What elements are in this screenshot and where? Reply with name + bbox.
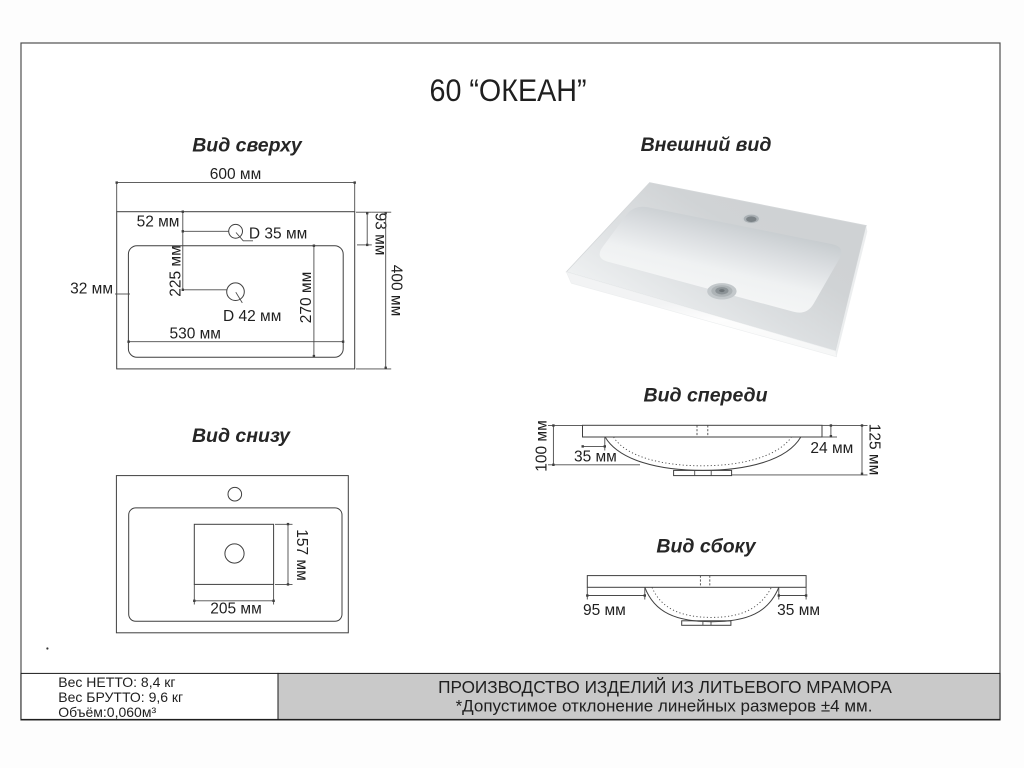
svg-text:95 мм: 95 мм [583, 602, 626, 619]
svg-text:225 мм: 225 мм [167, 245, 184, 296]
svg-text:125 мм: 125 мм [866, 424, 883, 475]
svg-text:32 мм: 32 мм [70, 281, 113, 298]
svg-text:52 мм: 52 мм [137, 213, 180, 230]
svg-text:205 мм: 205 мм [210, 601, 261, 618]
svg-text:ПРОИЗВОДСТВО ИЗДЕЛИЙ ИЗ ЛИТЬЕВ: ПРОИЗВОДСТВО ИЗДЕЛИЙ ИЗ ЛИТЬЕВОГО МРАМОР… [438, 677, 892, 697]
svg-text:270 мм: 270 мм [298, 272, 315, 323]
svg-text:Вес НЕТТО: 8,4 кг: Вес НЕТТО: 8,4 кг [58, 674, 175, 690]
svg-text:D 35 мм: D 35 мм [249, 226, 307, 243]
svg-text:Вид спереди: Вид спереди [643, 385, 767, 407]
svg-text:35 мм: 35 мм [777, 602, 820, 619]
svg-text:100 мм: 100 мм [534, 420, 551, 471]
svg-text:60 “ОКЕАН”: 60 “ОКЕАН” [430, 72, 587, 108]
svg-text:400 мм: 400 мм [388, 265, 405, 316]
svg-text:600 мм: 600 мм [210, 166, 261, 183]
svg-text:D 42 мм: D 42 мм [223, 308, 281, 325]
svg-text:35 мм: 35 мм [574, 449, 617, 466]
svg-text:Вид сверху: Вид сверху [192, 134, 303, 156]
svg-text:Внешний вид: Внешний вид [641, 134, 772, 156]
svg-text:24 мм: 24 мм [810, 440, 853, 457]
svg-text:530 мм: 530 мм [169, 326, 220, 343]
svg-text:Вид сбоку: Вид сбоку [656, 536, 756, 558]
svg-text:Объём:0,060м³: Объём:0,060м³ [58, 704, 156, 720]
svg-text:*Допустимое отклонение линейны: *Допустимое отклонение линейных размеров… [456, 697, 873, 716]
svg-text:Вес БРУТТО: 9,6 кг: Вес БРУТТО: 9,6 кг [58, 689, 183, 705]
svg-text:Вид снизу: Вид снизу [192, 425, 291, 447]
svg-text:157 мм: 157 мм [293, 529, 310, 580]
